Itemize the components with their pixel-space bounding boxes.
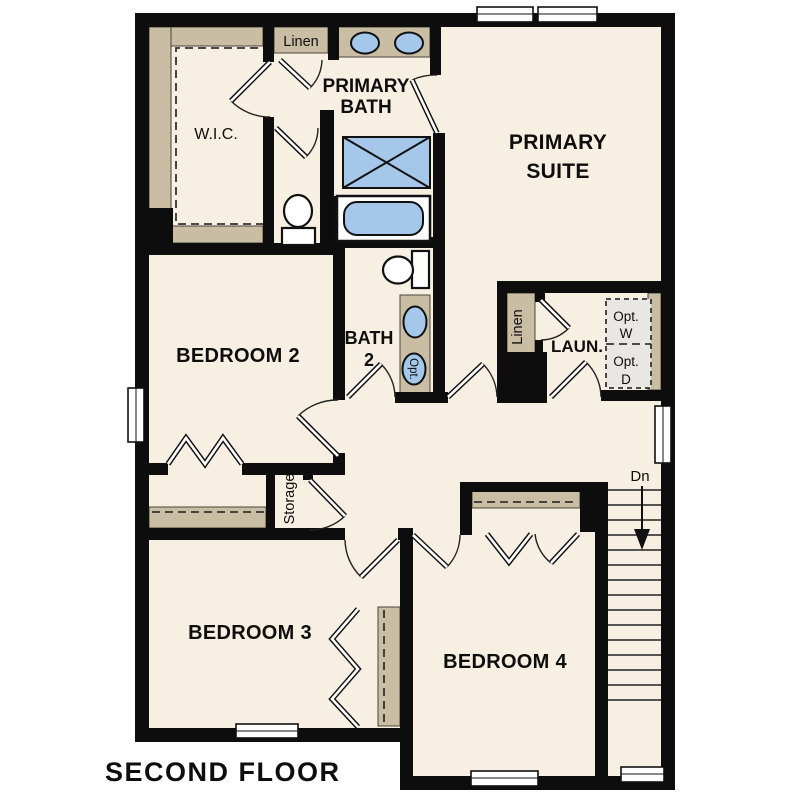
bedroom4-closet-shelf: [472, 490, 580, 508]
label-linen-hall: Linen: [283, 34, 318, 50]
window-stair-landing: [655, 406, 671, 463]
label-opt-dryer-1: Opt.: [613, 354, 639, 369]
label-primary-suite-1: PRIMARY: [509, 131, 607, 154]
label-opt-dryer-2: D: [621, 372, 631, 387]
label-storage: Storage: [282, 474, 298, 525]
bedroom2-closet-shelf: [149, 507, 266, 528]
toilet-water-closet: [282, 195, 315, 245]
label-primary-bath-2: BATH: [340, 97, 391, 118]
label-laundry: LAUN.: [551, 337, 603, 356]
label-bedroom3: BEDROOM 3: [188, 622, 312, 644]
label-primary-bath-1: PRIMARY: [323, 76, 410, 97]
label-opt-sink: Opt.: [407, 358, 419, 380]
floor-plan-page: W.I.C. Linen PRIMARY BATH PRIMARY SUITE …: [0, 0, 810, 810]
label-opt-washer-1: Opt.: [613, 309, 639, 324]
label-bedroom2: BEDROOM 2: [176, 345, 300, 367]
bath2-sink: [404, 307, 427, 338]
label-wic: W.I.C.: [194, 126, 238, 143]
window-bedroom4: [471, 771, 538, 786]
window-bedroom2: [128, 388, 144, 442]
label-bath2-1: BATH: [345, 328, 394, 348]
floor-plan-drawing: W.I.C. Linen PRIMARY BATH PRIMARY SUITE …: [0, 0, 810, 810]
page-title: SECOND FLOOR: [105, 757, 341, 787]
label-linen-laundry: Linen: [510, 309, 526, 344]
window-primary-suite-2: [538, 7, 597, 22]
label-bath2-2: 2: [364, 350, 374, 370]
bedroom3-closet-shelf: [378, 607, 400, 726]
shower: [343, 137, 430, 188]
label-stairs-down: Dn: [630, 468, 649, 485]
window-bedroom3: [236, 724, 298, 738]
window-stairwell-bottom: [621, 767, 664, 782]
bathtub: [337, 196, 430, 241]
label-primary-suite-2: SUITE: [526, 160, 589, 183]
window-primary-suite-1: [477, 7, 533, 22]
label-bedroom4: BEDROOM 4: [443, 651, 567, 673]
label-opt-washer-2: W: [620, 326, 633, 341]
wic-shelf-bottom: [171, 226, 263, 243]
